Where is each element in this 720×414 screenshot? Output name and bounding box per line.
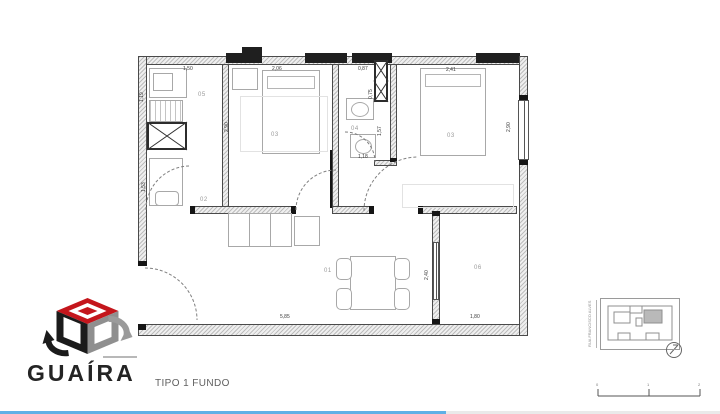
- wall-kitchen-bedroom: [222, 64, 229, 210]
- plan-caption: TIPO 1 FUNDO: [155, 378, 230, 389]
- bath-shaft: [374, 60, 388, 102]
- nightstand: [232, 68, 258, 90]
- wall-mid-b: [332, 206, 374, 214]
- kitchen-stove: [149, 100, 183, 122]
- wall-cap: [432, 211, 440, 216]
- laundry-tub: [149, 158, 183, 206]
- kitchen-counter-sink: [149, 68, 187, 98]
- dim-bedroom-mid-height: 2,90: [225, 122, 230, 132]
- tub-basin: [155, 191, 179, 206]
- logo-cube-arrows-icon: [40, 296, 135, 358]
- pillow: [425, 74, 481, 87]
- side-table: [294, 216, 320, 246]
- sofa: [228, 213, 292, 247]
- dim-left-lower: 1,53: [142, 182, 147, 192]
- wall-cap: [432, 319, 440, 324]
- keyplan-box: [600, 298, 680, 350]
- window-top-1: [226, 53, 262, 63]
- chair: [394, 288, 410, 310]
- wall-bath-bedroomright: [390, 64, 397, 164]
- wall-edge: [330, 150, 332, 208]
- terrace-door: [433, 242, 439, 300]
- wall-left: [138, 56, 147, 266]
- dim-terrace-height: 2,40: [425, 270, 430, 280]
- wall-cap: [138, 324, 146, 330]
- wall-cap: [519, 95, 528, 100]
- dim-bottom-terrace: 1,80: [470, 315, 480, 320]
- dining-table: [350, 256, 396, 310]
- keyplan-divider: [596, 300, 597, 348]
- dim-bath-inner: 1,57: [378, 126, 383, 136]
- room-label-kitchen: 05: [198, 92, 206, 98]
- video-frame: 05 02 03 04 03 01 06 1,50 2,06 0,87 2,41…: [0, 0, 720, 414]
- logo-wordmark: GUAÍRA: [27, 360, 136, 387]
- window-top-2: [305, 53, 347, 63]
- room-label-bathroom: 04: [351, 126, 359, 132]
- column-stub: [242, 47, 262, 54]
- window-top-4: [476, 53, 520, 63]
- dim-top-kitchen: 1,50: [183, 67, 193, 72]
- scale-tick-1: 1: [647, 383, 649, 387]
- wall-bottom: [138, 324, 528, 336]
- toilet-bowl: [351, 102, 369, 117]
- window-right: [518, 100, 529, 160]
- chair: [336, 288, 352, 310]
- room-label-service: 02: [200, 197, 208, 203]
- dim-bedroom-right-height: 2,90: [507, 122, 512, 132]
- scale-tick-2: 2: [698, 383, 700, 387]
- dim-bath-width: 1,18: [358, 155, 368, 160]
- logo-tagline: [103, 356, 137, 358]
- toilet: [346, 98, 374, 120]
- room-label-terrace: 06: [474, 265, 482, 271]
- bed-right: [420, 68, 486, 156]
- wall-cap: [390, 158, 397, 162]
- keyplan-street-label: RUA FRANCISCO ALVES: [588, 301, 592, 347]
- wall-cap: [519, 160, 528, 165]
- room-label-living: 01: [324, 268, 332, 274]
- pillow: [267, 76, 315, 89]
- wall-bedroommid-hall: [332, 64, 339, 210]
- dim-bottom-living: 5,85: [280, 315, 290, 320]
- chair: [394, 258, 410, 280]
- room-label-bedroom-mid: 03: [271, 132, 279, 138]
- shaft-box: [147, 122, 187, 150]
- dim-top-bedroom-right: 2,41: [446, 68, 456, 73]
- scale-tick-0: 0: [596, 383, 598, 387]
- room-label-bedroom-right: 03: [447, 133, 455, 139]
- rug: [240, 96, 328, 152]
- dim-bath-upper: 0,75: [369, 89, 374, 99]
- sink-basin: [355, 139, 372, 154]
- wall-cap: [369, 206, 374, 214]
- dim-top-bath: 0,87: [358, 67, 368, 72]
- north-arrow-icon: [666, 342, 682, 358]
- chair: [336, 258, 352, 280]
- rug: [402, 184, 514, 208]
- wall-cap: [190, 206, 195, 214]
- dim-left-upper: 1,19: [140, 92, 145, 102]
- wall-cap: [138, 261, 147, 266]
- dim-top-bedroom-mid: 2,06: [272, 67, 282, 72]
